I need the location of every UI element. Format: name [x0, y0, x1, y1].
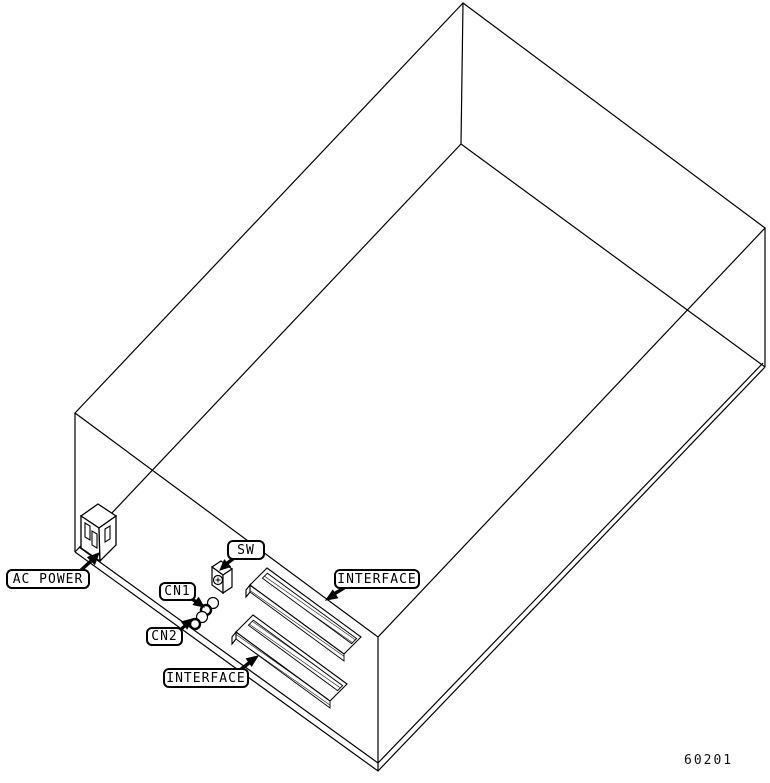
ac-outlet-ground-slot: [105, 526, 110, 542]
chassis-hidden-bottom-right-edge: [461, 144, 765, 367]
cn2-label: CN2: [146, 627, 183, 646]
chassis-hidden-back-edge: [461, 3, 463, 144]
chassis-hidden-bottom-left-edge: [75, 144, 461, 552]
chassis-wireframe: [75, 3, 765, 771]
diagram-page: AC POWER SW CN1 CN2 INTERFACE INTERFACE …: [0, 0, 770, 783]
ac-outlet-slot-1: [85, 523, 90, 540]
sw-label: SW: [227, 540, 265, 560]
cn2-connector-shape: [190, 612, 208, 630]
ac-outlet-slot-2: [92, 531, 97, 548]
interface-bottom-endcap: [232, 632, 236, 644]
cn1-label: CN1: [159, 582, 196, 601]
figure-number: 60201: [684, 753, 733, 768]
interface-top-arrow: [326, 588, 344, 600]
chassis-bottom-inner-edge: [79, 363, 763, 763]
chassis-top-face: [75, 3, 765, 637]
chassis-diagram: [0, 0, 770, 783]
interface-top-label: INTERFACE: [334, 569, 420, 589]
ac-power-label: AC POWER: [6, 569, 90, 589]
interface-bottom-label: INTERFACE: [163, 668, 249, 688]
interface-top-endcap: [246, 585, 250, 597]
chassis-bottom-outer-edge: [75, 367, 765, 771]
